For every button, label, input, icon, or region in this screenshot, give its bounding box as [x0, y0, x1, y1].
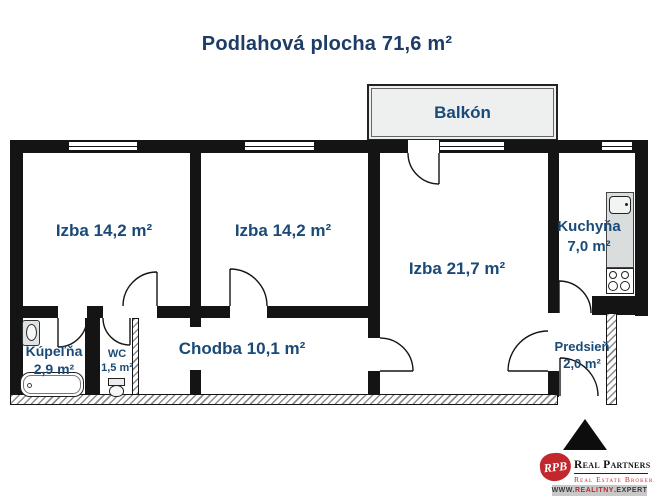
wall-stub — [190, 370, 201, 397]
wall-left — [10, 140, 23, 405]
balcony: Balkón — [367, 84, 558, 141]
wall-divider-izba1-izba2 — [190, 153, 201, 327]
stove-burner-icon — [608, 281, 618, 291]
door-wc — [103, 318, 130, 345]
stove-burner-icon — [620, 281, 630, 291]
wall-right — [635, 140, 648, 316]
logo-website: WWW.REALITNY.EXPERT — [552, 485, 647, 496]
window — [601, 141, 633, 151]
room-label-wc: WC 1,5 m² — [101, 347, 133, 375]
room-label-kupelna: Kúpeľňa 2,9 m² — [26, 342, 83, 378]
toilet-bowl-icon — [109, 385, 124, 397]
wall-wc-thin — [132, 318, 139, 397]
room-label-izba1: Izba 14,2 m² — [56, 221, 152, 241]
door-kuchyna — [559, 281, 591, 313]
door-balcony — [408, 153, 439, 184]
room-label-izba2: Izba 14,2 m² — [235, 221, 331, 241]
door-izba3 — [380, 338, 413, 371]
wall-hall — [10, 306, 58, 318]
logo-divider — [574, 473, 648, 474]
bathroom-sink-basin-icon — [26, 324, 37, 341]
wall-hall — [267, 306, 380, 318]
room-label-izba3: Izba 21,7 m² — [409, 259, 505, 279]
balcony-door-opening — [408, 140, 439, 153]
window — [244, 141, 315, 151]
wall-kitchen-bottom — [592, 296, 648, 315]
logo-triangle-icon — [563, 419, 607, 450]
room-label-kuchyna: Kuchyňa 7,0 m² — [557, 217, 620, 257]
bathtub-drain-icon — [27, 383, 32, 388]
stove-burner-icon — [621, 271, 629, 279]
window — [68, 141, 138, 151]
stove-burner-icon — [609, 271, 617, 279]
logo-monogram-icon: RPB — [539, 451, 573, 482]
room-label-predsien: Predsieň 2,0 m² — [555, 338, 610, 372]
logo-brand-name: Real Partners — [574, 459, 650, 471]
room-label-chodba: Chodba 10,1 m² — [179, 339, 306, 359]
wall-divider-izba2-izba3 — [368, 153, 380, 338]
window — [439, 141, 505, 151]
room-label-balkon: Balkón — [434, 103, 491, 123]
kitchen-faucet-icon — [625, 203, 628, 206]
wall-bottom-hatched — [10, 394, 558, 405]
floor-plan: Podlahová plocha 71,6 m² Balkón — [0, 0, 654, 500]
agency-logo: RPB Real Partners Real Estate Brokerage … — [535, 415, 654, 500]
door-predsien — [508, 331, 548, 371]
wall-hall — [87, 306, 103, 318]
logo-tagline: Real Estate Brokerage — [574, 475, 650, 484]
balcony-inner-border: Balkón — [371, 88, 554, 137]
page-title: Podlahová plocha 71,6 m² — [0, 33, 654, 56]
door-izba1 — [123, 272, 157, 306]
door-izba2 — [230, 269, 267, 306]
wall-kupelna-wc — [85, 318, 100, 397]
